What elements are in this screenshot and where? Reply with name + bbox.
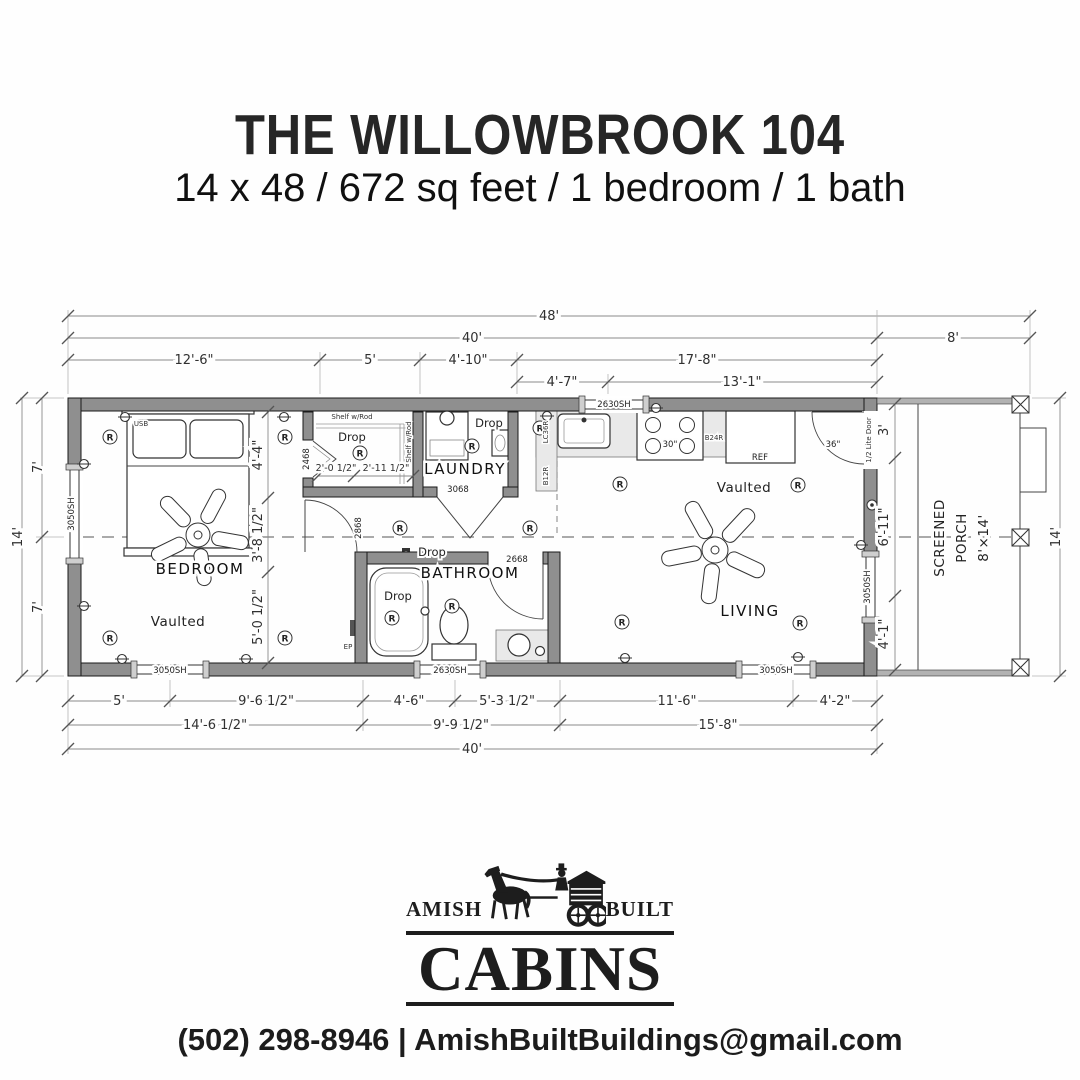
receptacle-icon: [791, 653, 805, 662]
porch-post: [1012, 659, 1029, 676]
window-label: 3050SH: [67, 497, 77, 530]
logo-word-cabins: CABINS: [406, 937, 674, 1001]
shelf-label: Shelf w/Rod: [405, 421, 413, 462]
bedroom-door: [305, 500, 357, 552]
recessed-light-icon: R: [615, 615, 629, 629]
dim: 4'-2": [820, 694, 851, 709]
window-label: 2630SH: [597, 400, 630, 410]
recessed-light-icon: R: [278, 430, 292, 444]
dim-porch-width: 8': [947, 331, 959, 346]
dim: 4'-4": [251, 440, 266, 471]
recessed-light-icon: R: [103, 631, 117, 645]
company-logo: AMISH: [406, 850, 674, 1008]
recessed-light-icon: R: [523, 521, 537, 535]
porch-label-3: 8'×14': [976, 514, 992, 562]
recessed-light-letter: R: [469, 443, 476, 453]
recessed-light-icon: R: [613, 477, 627, 491]
receptacle-icon: [277, 413, 291, 422]
porch-step: [1020, 428, 1046, 492]
dim: 5'-0 1/2": [251, 589, 266, 645]
logo-word-built: BUILT: [606, 897, 674, 930]
logo-word-amish: AMISH: [406, 897, 482, 930]
recessed-light-letter: R: [107, 635, 114, 645]
dim: 9'-9 1/2": [433, 718, 489, 733]
dim: 13'-1": [722, 375, 761, 390]
laundry-door: [437, 497, 503, 538]
dim: 11'-6": [657, 694, 696, 709]
room-label-bedroom: BEDROOM: [156, 560, 245, 578]
dim: 40': [462, 742, 482, 757]
dim: 14': [11, 527, 26, 547]
ref-label: REF: [752, 453, 768, 463]
door-label: 2668: [506, 555, 528, 565]
recessed-light-icon: R: [385, 611, 399, 625]
drop-label: Drop: [338, 430, 366, 444]
porch-post: [1012, 529, 1029, 546]
recessed-light-letter: R: [282, 434, 289, 444]
shelf-label: Shelf w/Rod: [331, 413, 372, 421]
door-label: 3068: [447, 485, 469, 495]
sink-faucet-icon: [582, 418, 587, 423]
dim-overall-width: 48': [539, 309, 559, 324]
recessed-light-icon: R: [103, 430, 117, 444]
dim: 7': [31, 601, 46, 613]
dim: 4'-1": [877, 619, 892, 650]
dim: 3': [877, 424, 892, 436]
recessed-light-letter: R: [357, 450, 364, 460]
door-type-label: 1/2 Lite Door: [865, 417, 873, 463]
range-width-label: 30": [663, 440, 678, 450]
window-label: 3050SH: [153, 666, 186, 676]
porch-post: [1012, 396, 1029, 413]
drop-label: Drop: [384, 589, 412, 603]
door-label: 2868: [354, 517, 364, 539]
recessed-light-letter: R: [527, 525, 534, 535]
cabinet-label: B12R: [542, 467, 550, 486]
bedroom-vaulted-note: Vaulted: [151, 614, 205, 630]
recessed-light-icon: R: [445, 599, 459, 613]
dim: 4'-7": [547, 375, 578, 390]
dim: 12'-6": [174, 353, 213, 368]
recessed-light-letter: R: [797, 620, 804, 630]
dim-main-width: 40': [462, 331, 482, 346]
dim: 14'-6 1/2": [183, 718, 247, 733]
receptacle-icon: [239, 655, 253, 664]
usb-label: USB: [134, 420, 149, 428]
panel-label: EP: [344, 643, 353, 651]
recessed-light-letter: R: [449, 603, 456, 613]
dim: 2'-0 1/2": [316, 463, 357, 474]
range: [637, 411, 703, 460]
porch-label-2: PORCH: [954, 513, 970, 563]
vanity-sink: [496, 630, 554, 661]
room-label-living: LIVING: [720, 602, 779, 620]
dim: 6'-11": [877, 507, 892, 546]
window-label: 2630SH: [433, 666, 466, 676]
window-label: 3050SH: [759, 666, 792, 676]
ceiling-fan-living: [660, 499, 766, 605]
dim: 5'-3 1/2": [479, 694, 535, 709]
tub-faucet-icon: [421, 607, 429, 615]
dim: 17'-8": [677, 353, 716, 368]
living-vaulted-note: Vaulted: [717, 480, 771, 496]
dim: 5': [364, 353, 376, 368]
recessed-light-letter: R: [795, 482, 802, 492]
recessed-light-icon: R: [353, 446, 367, 460]
dim: 3'-8 1/2": [251, 507, 266, 563]
recessed-light-letter: R: [107, 434, 114, 444]
receptacle-icon: [115, 655, 129, 664]
toilet: [432, 606, 476, 660]
dim: 4'-6": [394, 694, 425, 709]
kitchen-counter: [536, 411, 795, 491]
drop-label: Drop: [475, 416, 503, 430]
recessed-light-letter: R: [619, 619, 626, 629]
recessed-light-icon: R: [793, 616, 807, 630]
recessed-light-icon: R: [393, 521, 407, 535]
recessed-light-icon: R: [278, 631, 292, 645]
contact-info: (502) 298-8946 | AmishBuiltBuildings@gma…: [0, 1022, 1080, 1058]
dim: 9'-6 1/2": [238, 694, 294, 709]
dim: 4'-10": [448, 353, 487, 368]
room-label-bathroom: BATHROOM: [421, 564, 520, 582]
dim: 15'-8": [698, 718, 737, 733]
recessed-light-letter: R: [617, 481, 624, 491]
horse-and-buggy-icon: [482, 856, 605, 930]
recessed-light-letter: R: [397, 525, 404, 535]
porch-label-1: SCREENED: [932, 499, 948, 576]
cabinet-label: B24R: [705, 434, 724, 442]
room-label-laundry: LAUNDRY: [424, 460, 506, 478]
door-label: 2468: [302, 448, 312, 470]
recessed-light-icon: R: [465, 439, 479, 453]
dim: 5': [113, 694, 125, 709]
drop-label: Drop: [418, 545, 446, 559]
window-label: 3050SH: [863, 570, 873, 603]
dim: 14': [1049, 527, 1064, 547]
receptacle-icon: [618, 654, 632, 663]
dim: 2'-11 1/2": [363, 463, 410, 474]
recessed-light-icon: R: [791, 478, 805, 492]
recessed-light-letter: R: [282, 635, 289, 645]
cabinet-label: LC36R: [542, 421, 550, 444]
door-label: 36": [826, 440, 841, 450]
recessed-light-letter: R: [389, 615, 396, 625]
dim: 7': [31, 461, 46, 473]
page: THE WILLOWBROOK 104 14 x 48 / 672 sq fee…: [0, 0, 1080, 1080]
